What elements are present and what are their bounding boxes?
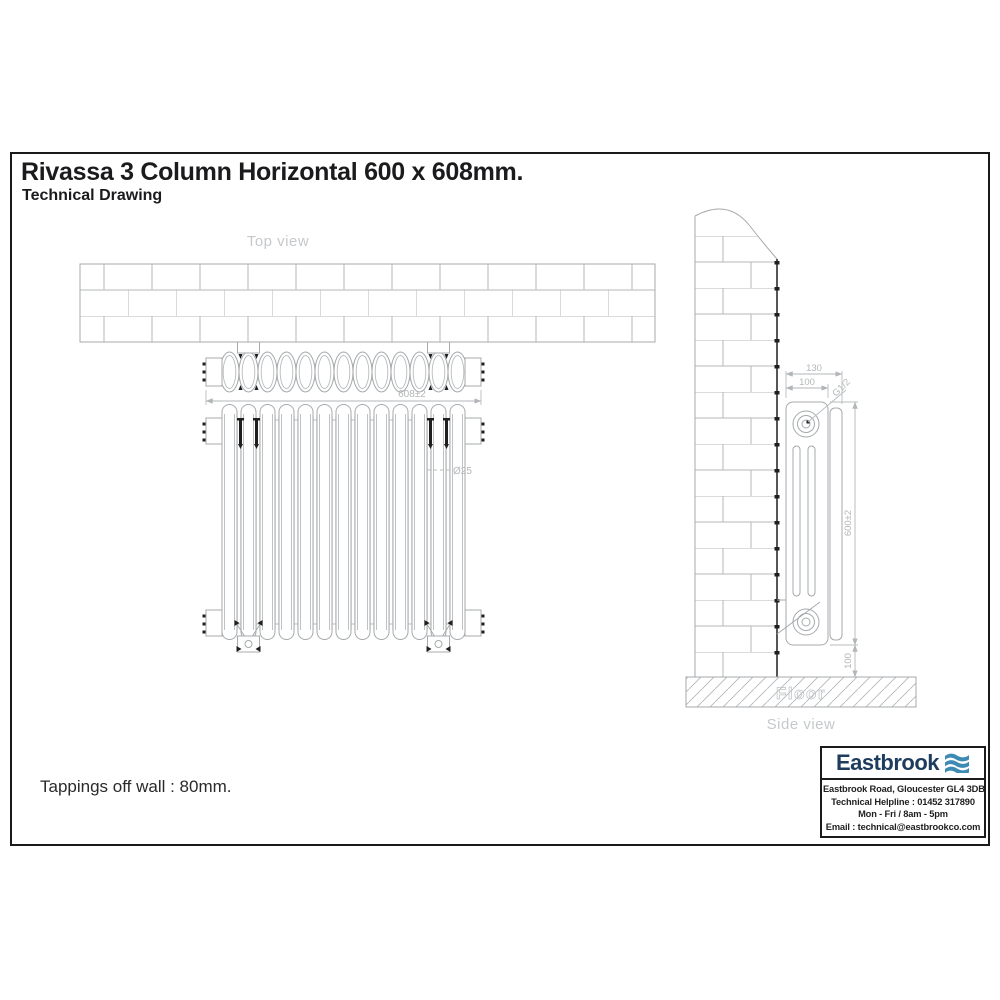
brand-logo: Eastbrook [822, 748, 984, 780]
brand-address: Eastbrook Road, Gloucester GL4 3DB [823, 784, 983, 794]
brand-box: Eastbrook Eastbrook Road, Gloucester GL4… [820, 746, 986, 838]
floor-label: Floor [776, 684, 826, 703]
waves-icon [944, 753, 970, 773]
brand-hours: Mon - Fri / 8am - 5pm [823, 809, 983, 819]
brand-details: Eastbrook Road, Gloucester GL4 3DB Techn… [822, 780, 984, 836]
side-view-label: Side view [767, 716, 836, 733]
technical-drawing-page: Rivassa 3 Column Horizontal 600 x 608mm.… [0, 0, 1000, 1000]
tappings-note: Tappings off wall : 80mm. [40, 777, 232, 797]
brand-helpline: Technical Helpline : 01452 317890 [823, 797, 983, 807]
wall-side-view [695, 236, 777, 677]
top-view: Top view [80, 233, 655, 405]
dim-diameter-label: Ø25 [453, 466, 472, 477]
radiator-technical-drawing: Top view [0, 0, 1000, 1000]
side-view: 130 100 G1/2 600±2 100 Floor Side view [686, 209, 916, 733]
wall-top-view [80, 264, 655, 342]
brand-email: Email : technical@eastbrookco.com [823, 822, 983, 832]
depth-dimensions: 130 100 [786, 363, 842, 404]
top-view-label: Top view [247, 233, 309, 250]
dim-overall-depth-label: 130 [806, 363, 822, 374]
radiator-front-view [203, 405, 485, 653]
dim-tapping-label: G1/2 [830, 377, 852, 399]
floor-clearance-dimension: 100 [843, 645, 855, 677]
radiator-top-view [203, 342, 485, 392]
dim-width-label: 608±2 [398, 389, 426, 400]
dim-height-label: 600±2 [843, 510, 854, 536]
dim-depth-label: 100 [799, 377, 815, 388]
brand-name: Eastbrook [836, 750, 939, 776]
front-view: Ø25 [203, 405, 485, 653]
dim-floor-clearance-label: 100 [843, 653, 854, 669]
radiator-side-view [777, 402, 842, 645]
